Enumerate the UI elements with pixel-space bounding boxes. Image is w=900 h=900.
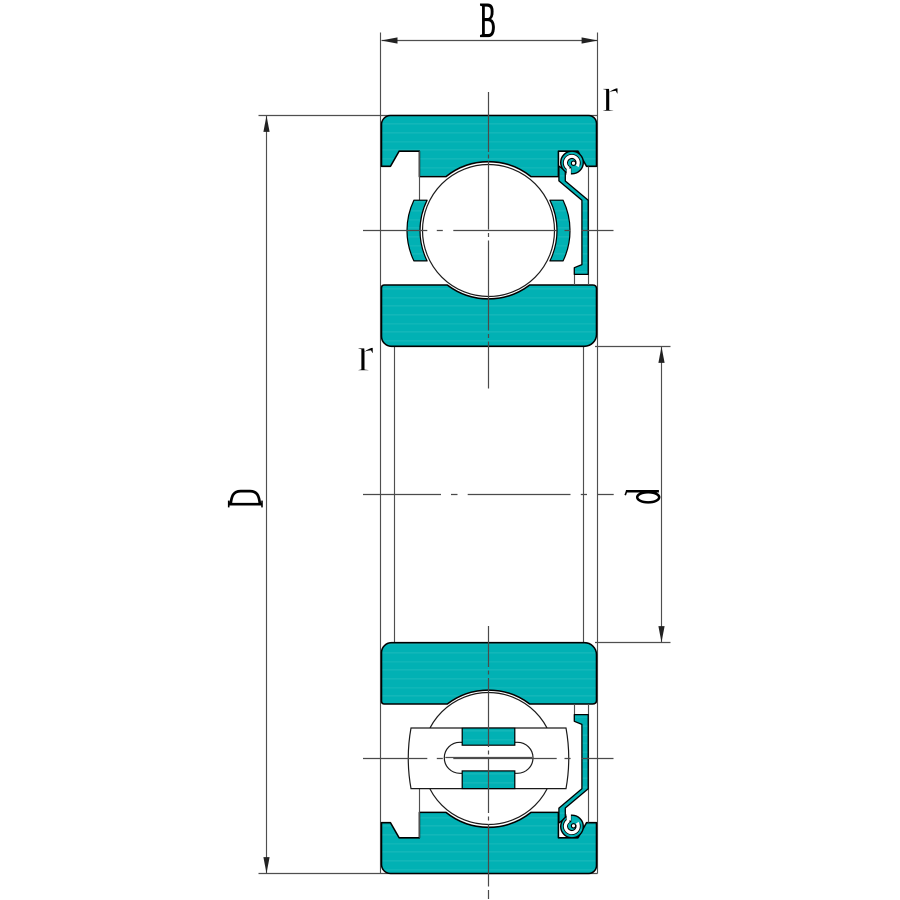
svg-text:r: r — [602, 66, 619, 122]
svg-text:r: r — [357, 326, 374, 382]
svg-text:B: B — [480, 0, 496, 48]
